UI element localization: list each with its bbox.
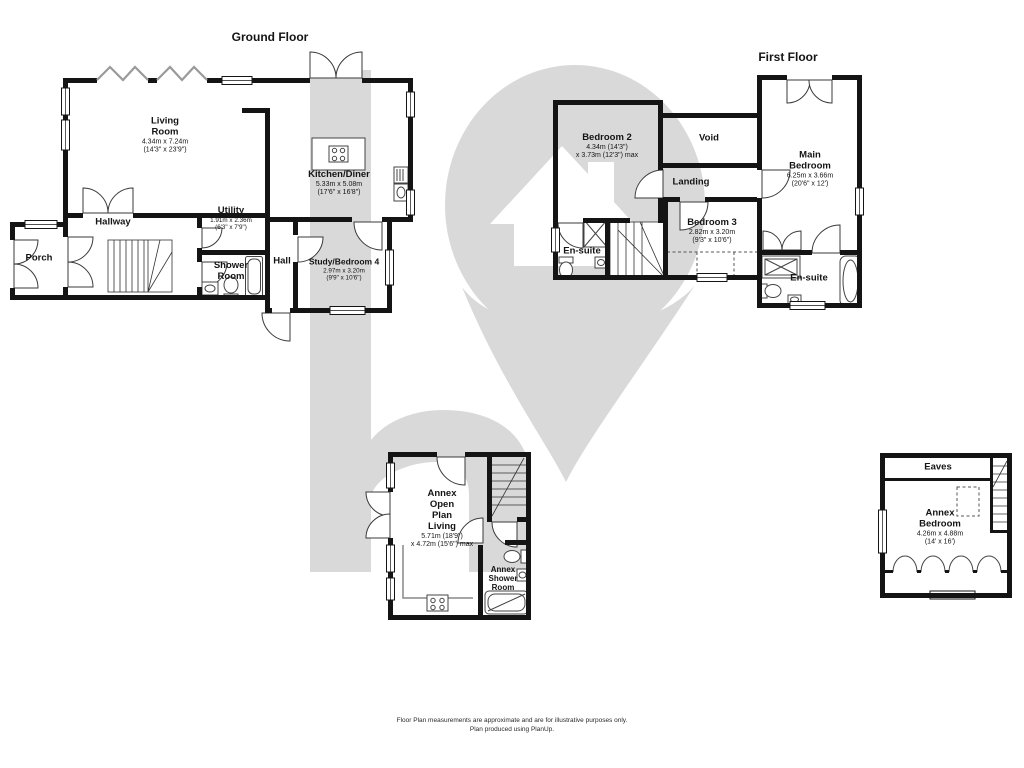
room-name: Study/Bedroom 4	[309, 258, 379, 268]
room-label-bedroom-3: Bedroom 3 2.82m x 3.20m (9'3" x 10'6")	[687, 218, 737, 246]
room-label-eaves: Eaves	[924, 463, 951, 474]
room-dims-imperial: (14' x 16')	[917, 539, 963, 547]
room-label-en-suite-left: En-suite	[563, 247, 600, 258]
room-label-shower-room: Shower Room	[214, 261, 248, 283]
room-name: Void	[699, 134, 719, 145]
first-floor-title: First Floor	[758, 50, 817, 64]
room-label-landing: Landing	[673, 178, 710, 189]
room-label-annex-open-plan-living: Annex Open Plan Living 5.71m (18'9") x 4…	[411, 489, 473, 549]
room-label-annex-bedroom: Annex Bedroom 4.26m x 4.88m (14' x 16')	[917, 509, 963, 548]
room-name: Hall	[273, 257, 290, 268]
room-name: Bedroom 2	[576, 133, 638, 144]
disclaimer-line-1: Floor Plan measurements are approximate …	[0, 717, 1024, 726]
room-dims-imperial: (6'3" x 7'9")	[210, 224, 252, 232]
room-label-kitchen-diner: Kitchen/Diner 5.33m x 5.08m (17'6" x 16'…	[308, 170, 370, 198]
room-label-bedroom-2: Bedroom 2 4.34m (14'3") x 3.73m (12'3") …	[576, 133, 638, 161]
room-name: Living Room	[142, 117, 188, 139]
room-name: Landing	[673, 178, 710, 189]
room-label-living-room: Living Room 4.34m x 7.24m (14'3" x 23'9"…	[142, 117, 188, 156]
room-dims-metric: 4.26m x 4.88m	[917, 531, 963, 539]
room-label-void: Void	[699, 134, 719, 145]
room-name: Shower Room	[214, 261, 248, 283]
disclaimer-line-2: Plan produced using PlanUp.	[0, 726, 1024, 735]
room-dims-metric: 5.33m x 5.08m	[308, 181, 370, 189]
room-label-hall: Hall	[273, 257, 290, 268]
ground-floor-title: Ground Floor	[232, 30, 309, 44]
room-dims-metric: 1.91m x 2.36m	[210, 217, 252, 225]
dashed-guides	[667, 252, 979, 516]
room-name: Annex Bedroom	[917, 509, 963, 531]
room-name: Kitchen/Diner	[308, 170, 370, 181]
room-dims-metric: 2.97m x 3.20m	[309, 267, 379, 275]
room-name: Annex Open Plan Living	[411, 489, 473, 533]
room-dims-imperial: x 4.72m (15'6") max	[411, 541, 473, 549]
room-dims-metric: 4.34m x 7.24m	[142, 139, 188, 147]
room-dims-imperial: (17'6" x 16'8")	[308, 189, 370, 197]
room-name: Bedroom 3	[687, 218, 737, 229]
footer-disclaimer: Floor Plan measurements are approximate …	[0, 717, 1024, 735]
room-dims-imperial: (20'6" x 12')	[787, 181, 833, 189]
room-name: Utility	[210, 206, 252, 217]
room-name: Main Bedroom	[787, 151, 833, 173]
room-dims-metric: 4.34m (14'3")	[576, 144, 638, 152]
room-dims-imperial: (9'3" x 10'6")	[687, 237, 737, 245]
room-label-porch: Porch	[26, 254, 53, 265]
room-dims-metric: 2.82m x 3.20m	[687, 229, 737, 237]
room-name: En-suite	[790, 274, 827, 285]
room-label-main-bedroom: Main Bedroom 6.25m x 3.66m (20'6" x 12')	[787, 151, 833, 190]
room-name: En-suite	[563, 247, 600, 258]
room-label-annex-shower-room: Annex Shower Room	[489, 565, 518, 593]
room-name: Annex Shower Room	[489, 565, 518, 593]
room-label-utility: Utility 1.91m x 2.36m (6'3" x 7'9")	[210, 206, 252, 232]
room-label-hallway: Hallway	[95, 218, 130, 229]
room-dims-imperial: (14'3" x 23'9")	[142, 147, 188, 155]
room-dims-imperial: x 3.73m (12'3") max	[576, 152, 638, 160]
floorplan-page: Ground Floor First Floor Living Room 4.3…	[0, 0, 1024, 768]
room-dims-metric: 6.25m x 3.66m	[787, 173, 833, 181]
room-label-study-bedroom-4: Study/Bedroom 4 2.97m x 3.20m (9'9" x 10…	[309, 258, 379, 283]
eaves-arch-openings	[893, 556, 1001, 572]
room-name: Porch	[26, 254, 53, 265]
room-dims-metric: 5.71m (18'9")	[411, 532, 473, 540]
room-name: Hallway	[95, 218, 130, 229]
room-dims-imperial: (9'9" x 10'6")	[309, 275, 379, 283]
room-label-en-suite-right: En-suite	[790, 274, 827, 285]
room-name: Eaves	[924, 463, 951, 474]
